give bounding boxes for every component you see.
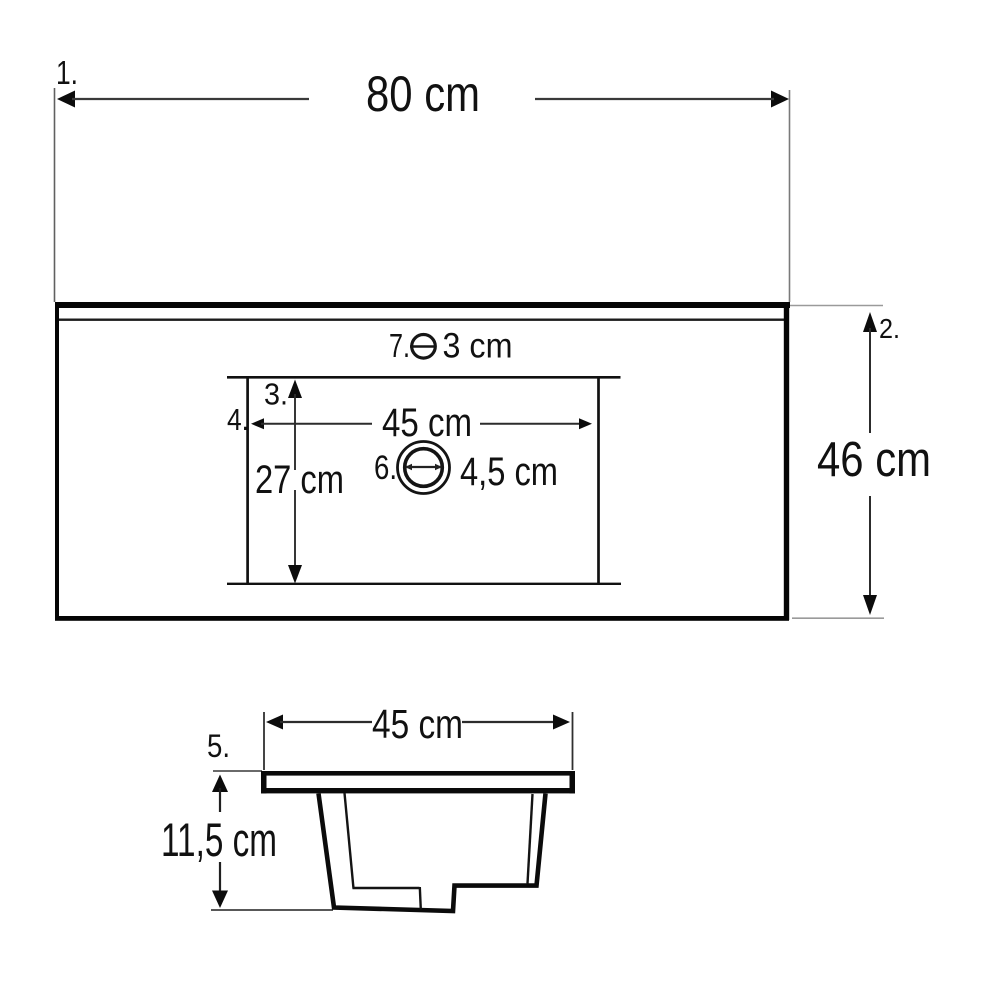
svg-text:2.: 2. xyxy=(879,313,900,344)
svg-text:45 cm: 45 cm xyxy=(372,701,463,747)
svg-text:5.: 5. xyxy=(207,728,230,764)
svg-text:1.: 1. xyxy=(56,54,78,91)
svg-text:45 cm: 45 cm xyxy=(382,401,472,445)
svg-text:27 cm: 27 cm xyxy=(255,458,344,502)
svg-text:80 cm: 80 cm xyxy=(366,66,480,122)
svg-text:3.: 3. xyxy=(264,377,288,412)
svg-text:7.: 7. xyxy=(389,327,410,364)
svg-text:3 cm: 3 cm xyxy=(443,326,513,366)
svg-text:4.: 4. xyxy=(227,402,249,437)
svg-text:11,5 cm: 11,5 cm xyxy=(161,813,277,866)
svg-text:4,5 cm: 4,5 cm xyxy=(460,450,558,494)
svg-text:46 cm: 46 cm xyxy=(817,433,931,487)
svg-text:6.: 6. xyxy=(374,449,397,487)
